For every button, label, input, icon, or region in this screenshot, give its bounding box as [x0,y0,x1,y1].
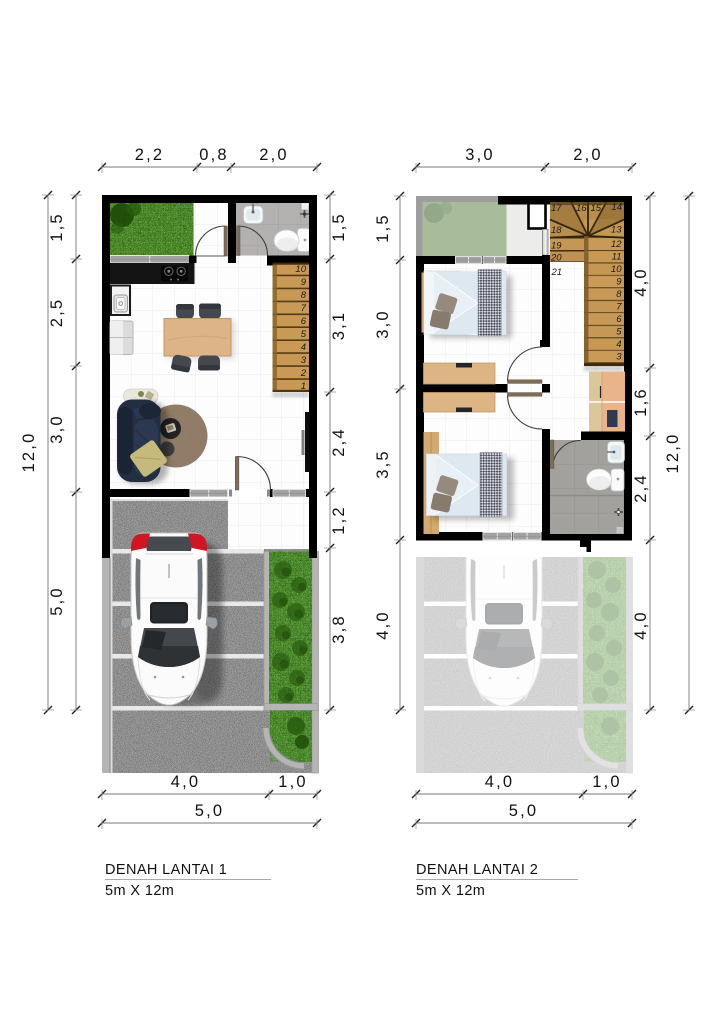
svg-text:12,0: 12,0 [20,432,38,473]
svg-text:5m X 12m: 5m X 12m [105,883,174,899]
svg-text:3: 3 [301,355,307,366]
svg-text:17: 17 [551,203,562,214]
svg-text:4,0: 4,0 [171,773,201,791]
svg-text:4: 4 [301,342,306,353]
svg-text:5: 5 [616,327,622,338]
svg-text:6: 6 [616,314,622,325]
svg-text:2: 2 [300,368,307,379]
svg-text:2,4: 2,4 [330,427,348,457]
svg-text:21: 21 [551,267,563,278]
svg-text:12,0: 12,0 [664,433,682,474]
svg-text:5m X 12m: 5m X 12m [416,883,485,899]
svg-text:14: 14 [611,202,622,213]
svg-text:6: 6 [301,316,307,327]
svg-text:7: 7 [616,302,622,313]
svg-text:1,5: 1,5 [330,212,348,242]
svg-text:4: 4 [616,339,621,350]
svg-text:10: 10 [295,264,306,275]
svg-text:11: 11 [612,252,622,263]
svg-text:9: 9 [301,277,307,288]
svg-text:5,0: 5,0 [48,586,66,616]
svg-text:12: 12 [611,239,622,250]
svg-text:13: 13 [611,225,622,236]
svg-text:10: 10 [611,264,622,275]
svg-text:2,4: 2,4 [632,473,650,503]
svg-text:8: 8 [616,289,622,300]
svg-text:3,0: 3,0 [48,414,66,444]
svg-text:1,5: 1,5 [48,212,66,242]
svg-text:4,0: 4,0 [632,610,650,640]
svg-text:3,5: 3,5 [374,449,392,479]
svg-text:16: 16 [576,203,587,214]
svg-text:3: 3 [616,352,622,363]
svg-text:5,0: 5,0 [509,802,539,820]
svg-text:2,5: 2,5 [48,298,66,328]
svg-text:19: 19 [551,241,562,252]
svg-text:4,0: 4,0 [632,267,650,297]
svg-text:1,2: 1,2 [330,505,348,535]
svg-text:1,6: 1,6 [632,387,650,417]
svg-text:15: 15 [591,203,602,214]
svg-text:7: 7 [301,303,307,314]
svg-text:DENAH LANTAI 1: DENAH LANTAI 1 [105,862,227,878]
svg-text:1: 1 [301,381,306,392]
svg-text:8: 8 [301,290,307,301]
svg-text:18: 18 [551,225,562,236]
svg-text:3,1: 3,1 [330,311,348,341]
svg-text:1,5: 1,5 [374,213,392,243]
svg-text:4,0: 4,0 [485,773,515,791]
svg-text:3,0: 3,0 [374,309,392,339]
svg-text:DENAH LANTAI 2: DENAH LANTAI 2 [416,862,538,878]
svg-text:3,8: 3,8 [330,614,348,644]
svg-text:2,2: 2,2 [135,146,165,164]
svg-text:2,0: 2,0 [573,146,603,164]
svg-text:5,0: 5,0 [195,802,225,820]
svg-text:3,0: 3,0 [465,146,495,164]
svg-text:20: 20 [550,253,562,264]
svg-text:5: 5 [301,329,307,340]
svg-text:1,0: 1,0 [592,773,622,791]
svg-text:9: 9 [616,277,622,288]
svg-text:0,8: 0,8 [199,146,229,164]
svg-text:2,0: 2,0 [259,146,289,164]
svg-text:1,0: 1,0 [278,773,308,791]
svg-text:4,0: 4,0 [374,610,392,640]
